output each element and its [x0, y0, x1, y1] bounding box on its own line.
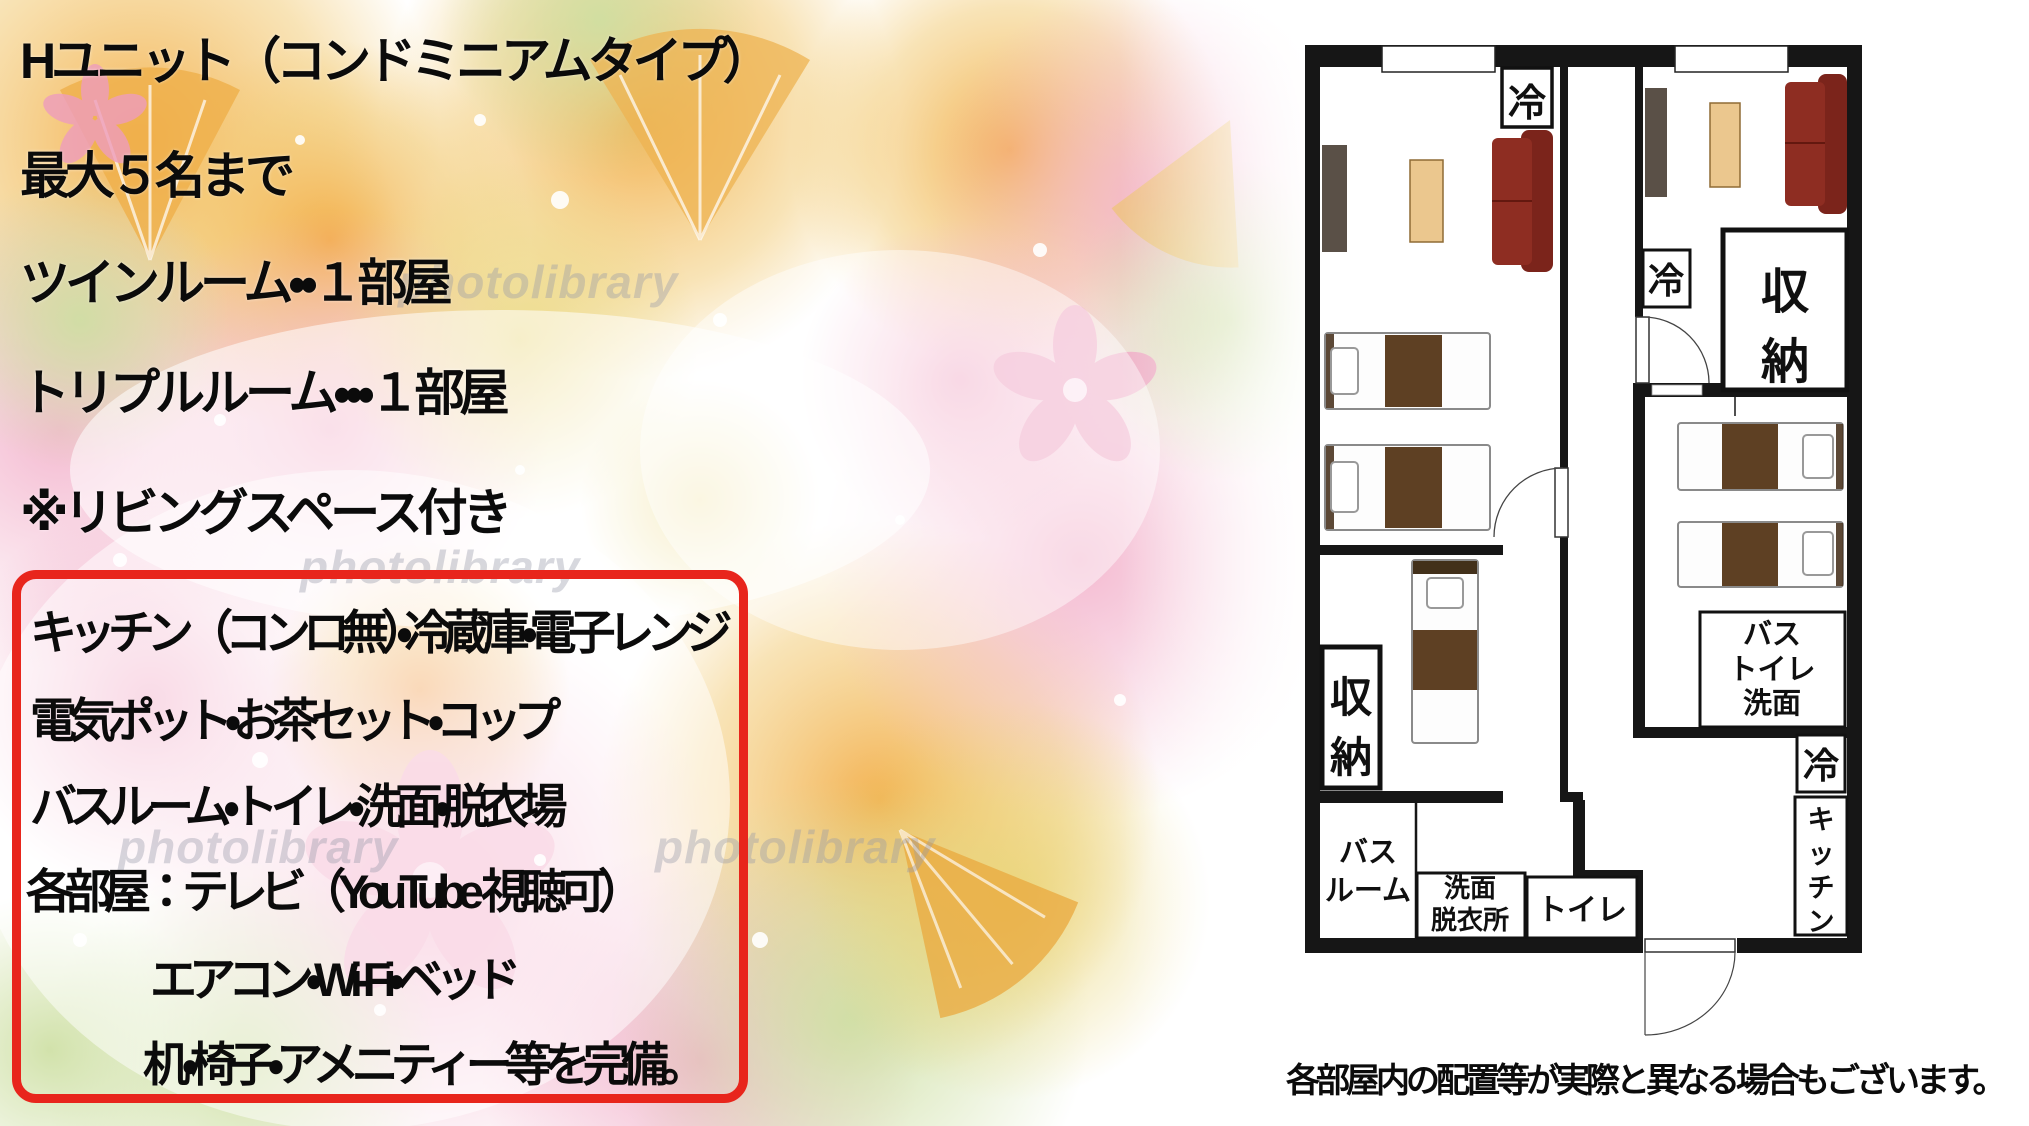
- table: [1410, 160, 1443, 242]
- bed-pillow: [1331, 462, 1358, 512]
- bed-blanket: [1722, 523, 1778, 586]
- amenity-tv-line: 各部屋：テレビ（YouTube 視聴可）: [26, 853, 637, 922]
- bed-headboard: [1836, 523, 1843, 586]
- door-twin-room: [1494, 468, 1568, 537]
- window-twin-room: [1382, 46, 1495, 72]
- bath-toilet-wash-label: バス: [1743, 619, 1801, 651]
- door-swing-arc: [1494, 468, 1563, 537]
- sofa: [1492, 130, 1553, 272]
- fridge-label: 冷: [1803, 745, 1840, 786]
- bed: [1678, 522, 1843, 587]
- triple-room-beds: [1678, 423, 1843, 587]
- tv-board: [1322, 145, 1347, 252]
- bed-pillow: [1803, 532, 1833, 575]
- floorplan-caption: 各部屋内の配置等が実際と異なる場合もございます。: [1286, 1053, 2026, 1102]
- twin-room-furniture: [1322, 130, 1553, 530]
- door-leaf: [1636, 317, 1649, 383]
- bath-toilet-wash-label: トイレ: [1728, 654, 1815, 686]
- window-living-room: [1675, 46, 1788, 72]
- wall-corridor-left-upper: [1560, 67, 1568, 468]
- title-unit-name: Hユニット（コンドミニアムタイプ）: [20, 21, 768, 93]
- bathroom-label: バス: [1339, 837, 1397, 869]
- wall-step-v1: [1573, 800, 1585, 872]
- living-room-furniture: [1645, 74, 1847, 214]
- bed: [1325, 333, 1490, 409]
- title-triple-room: トリプルルーム・・・１部屋: [20, 353, 505, 425]
- door-swing-arc: [1645, 952, 1735, 1035]
- door-entrance: [1645, 939, 1735, 1035]
- door-swing-arc: [1643, 317, 1709, 383]
- bed-pillow: [1803, 435, 1833, 478]
- door-threshold: [1652, 385, 1702, 395]
- flyer-page: photolibrary photolibrary photolibrary p…: [0, 0, 2029, 1126]
- door-leaf: [1645, 939, 1735, 952]
- bathroom-label: ルーム: [1325, 875, 1411, 907]
- wall-bottom-right: [1737, 938, 1862, 953]
- toilet-label: トイレ: [1537, 894, 1627, 927]
- wall-triple-left: [1633, 395, 1645, 738]
- bed-pillow: [1427, 578, 1463, 608]
- door-living-room: [1636, 317, 1709, 383]
- wall-left: [1305, 45, 1320, 953]
- fridge-label: 冷: [1508, 83, 1546, 125]
- wall-right: [1847, 45, 1862, 953]
- living-space-bed: [1412, 560, 1478, 743]
- bed-blanket: [1385, 335, 1442, 407]
- wall-bottom-left: [1305, 938, 1643, 953]
- title-max-guests: 最大５名まで: [20, 136, 290, 208]
- amenity-pot-line: 電気ポット・お茶セット・コップ: [30, 682, 553, 751]
- wall-corridor-left-lower: [1560, 537, 1568, 792]
- title-living-space: ※リビングスペース付き: [20, 473, 508, 545]
- amenity-aircon-line: エアコン・Wi-Fi・ベッド: [150, 941, 513, 1010]
- fridge-label: 冷: [1648, 260, 1685, 301]
- bed: [1325, 445, 1490, 530]
- wash-dressing-label: 洗面: [1444, 873, 1496, 903]
- tv-board: [1645, 88, 1667, 197]
- wash-dressing-label: 脱衣所: [1431, 905, 1509, 935]
- amenity-desk-line: 机・椅子・アメニティー等を完備。: [143, 1026, 700, 1095]
- bed-blanket: [1722, 424, 1778, 489]
- wall-living-bottom: [1320, 791, 1503, 803]
- bed-headboard: [1413, 561, 1477, 574]
- bath-toilet-wash-label: 洗面: [1743, 687, 1801, 720]
- door-leaf: [1555, 468, 1568, 537]
- title-twin-room: ツインルーム・・１部屋: [20, 243, 448, 315]
- floorplan: 冷 冷 冷 収納 収納 バス トイレ 洗面 バス ルーム 洗面 脱衣所 トイレ …: [1280, 0, 2029, 1126]
- sofa: [1785, 74, 1847, 214]
- wall-twin-bottom: [1320, 545, 1503, 555]
- bed-headboard: [1836, 424, 1843, 489]
- bed-blanket: [1385, 447, 1442, 528]
- table: [1710, 103, 1740, 187]
- amenity-kitchen-line: キッチン（コンロ無）・冷蔵庫・電子レンジ: [30, 594, 724, 663]
- bed: [1678, 423, 1843, 490]
- amenity-bath-line: バスルーム・トイレ・洗面・脱衣場: [30, 768, 560, 837]
- bed-pillow: [1331, 348, 1358, 394]
- bed-blanket: [1413, 630, 1477, 690]
